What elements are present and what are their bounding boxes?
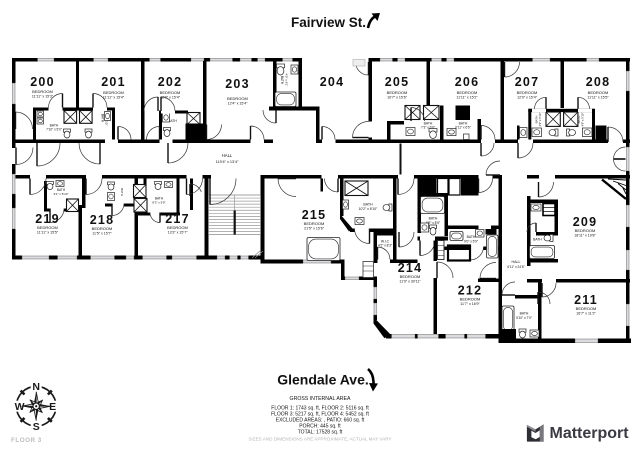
svg-text:207: 207 xyxy=(515,75,539,89)
svg-text:12’4” x 15’4”: 12’4” x 15’4” xyxy=(228,102,249,106)
svg-text:4’9” x 5’10”: 4’9” x 5’10” xyxy=(580,113,584,127)
svg-text:11’11” x 15’2”: 11’11” x 15’2” xyxy=(456,96,478,100)
svg-text:BEDROOM: BEDROOM xyxy=(167,225,188,230)
svg-text:11’9” x 30’11”: 11’9” x 30’11” xyxy=(399,280,421,284)
svg-text:212: 212 xyxy=(458,284,482,298)
svg-text:FLOOR 1: 1743 sq. ft, FLOOR 2:: FLOOR 1: 1743 sq. ft, FLOOR 2: 5116 sq. … xyxy=(271,405,369,411)
svg-text:GROSS INTERNAL AREA: GROSS INTERNAL AREA xyxy=(290,396,351,402)
svg-text:10’2” x 8’10”: 10’2” x 8’10” xyxy=(359,207,378,211)
svg-text:206: 206 xyxy=(455,75,479,89)
svg-text:BEDROOM: BEDROOM xyxy=(588,90,609,95)
svg-text:209: 209 xyxy=(573,215,597,229)
svg-text:214: 214 xyxy=(398,261,422,275)
svg-text:Fairview St.: Fairview St. xyxy=(291,15,366,30)
svg-text:6’11” x 24’6”: 6’11” x 24’6” xyxy=(507,265,524,269)
svg-text:5’10” x 7’0”: 5’10” x 7’0” xyxy=(516,316,532,320)
svg-text:13’3” x 15’7”: 13’3” x 15’7” xyxy=(168,231,189,235)
svg-text:219: 219 xyxy=(35,212,59,226)
svg-text:203: 203 xyxy=(225,77,249,91)
svg-text:208: 208 xyxy=(586,75,610,89)
svg-text:6’1” x 5’10”: 6’1” x 5’10” xyxy=(54,192,69,196)
svg-text:12’0” x 15’4”: 12’0” x 15’4” xyxy=(160,96,181,100)
svg-text:21’5” x 15’6”: 21’5” x 15’6” xyxy=(304,227,325,231)
svg-text:BEDROOM: BEDROOM xyxy=(460,297,481,302)
svg-text:4’2” x 8’3”: 4’2” x 8’3” xyxy=(378,244,392,248)
svg-text:S: S xyxy=(33,421,40,433)
svg-text:16’7” x 11’2”: 16’7” x 11’2” xyxy=(576,312,596,316)
svg-text:BATH: BATH xyxy=(533,238,542,242)
svg-text:215: 215 xyxy=(302,208,326,222)
svg-text:BEDROOM: BEDROOM xyxy=(400,274,421,279)
svg-text:BEDROOM: BEDROOM xyxy=(304,221,325,226)
svg-text:PORCH: 445 sq. ft: PORCH: 445 sq. ft xyxy=(299,424,341,430)
svg-text:W: W xyxy=(15,401,25,413)
svg-text:BATH: BATH xyxy=(101,114,105,123)
svg-text:BEDROOM: BEDROOM xyxy=(575,228,596,233)
svg-text:HALL: HALL xyxy=(512,260,521,264)
svg-text:218: 218 xyxy=(90,213,114,227)
svg-text:11’7” x 16’9”: 11’7” x 16’9” xyxy=(460,302,480,306)
svg-text:8’3” x 5’9”: 8’3” x 5’9” xyxy=(152,201,165,205)
svg-text:BEDROOM: BEDROOM xyxy=(103,90,124,95)
svg-text:9’0” x 5’9”: 9’0” x 5’9” xyxy=(464,240,478,244)
svg-text:217: 217 xyxy=(165,212,189,226)
svg-text:205: 205 xyxy=(385,75,409,89)
svg-text:11’11” x 15’4”: 11’11” x 15’4” xyxy=(103,96,125,100)
svg-text:N: N xyxy=(32,381,40,393)
svg-text:6’11” x 6’5”: 6’11” x 6’5” xyxy=(455,125,471,129)
svg-text:SIZES AND DIMENSIONS ARE APPRO: SIZES AND DIMENSIONS ARE APPROXIMATE, AC… xyxy=(248,436,391,441)
svg-text:12’0” x 15’4”: 12’0” x 15’4” xyxy=(517,96,538,100)
svg-text:Glendale Ave.: Glendale Ave. xyxy=(277,372,369,388)
svg-text:FLOOR 3: 5217 sq. ft, FLOOR 4:: FLOOR 3: 5217 sq. ft, FLOOR 4: 5452 sq. … xyxy=(271,411,369,417)
svg-text:FLOOR 3: FLOOR 3 xyxy=(11,437,42,444)
svg-text:119’4” x 13’4”: 119’4” x 13’4” xyxy=(216,160,239,164)
svg-text:202: 202 xyxy=(158,75,182,89)
svg-text:BATH: BATH xyxy=(467,235,476,239)
svg-text:Matterport: Matterport xyxy=(550,425,630,442)
svg-text:BEDROOM: BEDROOM xyxy=(457,90,478,95)
svg-text:11’11” x 15’3”: 11’11” x 15’3” xyxy=(32,95,54,99)
svg-text:BEDROOM: BEDROOM xyxy=(517,90,538,95)
svg-text:BEDROOM: BEDROOM xyxy=(227,96,248,101)
svg-text:4’9” x 9’1”: 4’9” x 9’1” xyxy=(285,73,289,86)
svg-text:BATH: BATH xyxy=(120,188,124,196)
svg-text:11’5” x 15’7”: 11’5” x 15’7” xyxy=(92,232,112,236)
svg-text:BATH: BATH xyxy=(520,312,529,316)
svg-text:BEDROOM: BEDROOM xyxy=(576,306,597,311)
svg-text:BEDROOM: BEDROOM xyxy=(387,90,408,95)
svg-text:211: 211 xyxy=(574,293,598,307)
svg-text:BEDROOM: BEDROOM xyxy=(92,226,113,231)
svg-text:200: 200 xyxy=(30,75,54,89)
svg-text:BATH: BATH xyxy=(280,76,284,85)
svg-text:10’7” x 15’6”: 10’7” x 15’6” xyxy=(387,96,408,100)
svg-text:7’10” x 5’0”: 7’10” x 5’0” xyxy=(46,128,62,132)
svg-text:BATH: BATH xyxy=(429,217,438,221)
svg-text:201: 201 xyxy=(101,75,125,89)
svg-text:HALL: HALL xyxy=(222,153,233,158)
svg-text:E: E xyxy=(49,401,56,413)
svg-text:18’11” x 19’8”: 18’11” x 19’8” xyxy=(574,234,596,238)
svg-text:EXCLUDED AREAS: , PATIO: 660 s: EXCLUDED AREAS: , PATIO: 660 sq. ft xyxy=(276,418,365,424)
svg-text:204: 204 xyxy=(320,75,344,89)
svg-text:BEDROOM: BEDROOM xyxy=(37,225,58,230)
svg-text:BEDROOM: BEDROOM xyxy=(32,89,53,94)
svg-text:11’11” x 15’5”: 11’11” x 15’5” xyxy=(37,231,59,235)
svg-text:TOTAL: 17528 sq. ft: TOTAL: 17528 sq. ft xyxy=(298,430,343,436)
svg-text:11’11” x 15’5”: 11’11” x 15’5” xyxy=(587,96,609,100)
svg-text:BEDROOM: BEDROOM xyxy=(160,90,181,95)
svg-text:BATH: BATH xyxy=(363,203,373,207)
svg-text:4’9” x 5’10”: 4’9” x 5’10” xyxy=(538,113,542,127)
